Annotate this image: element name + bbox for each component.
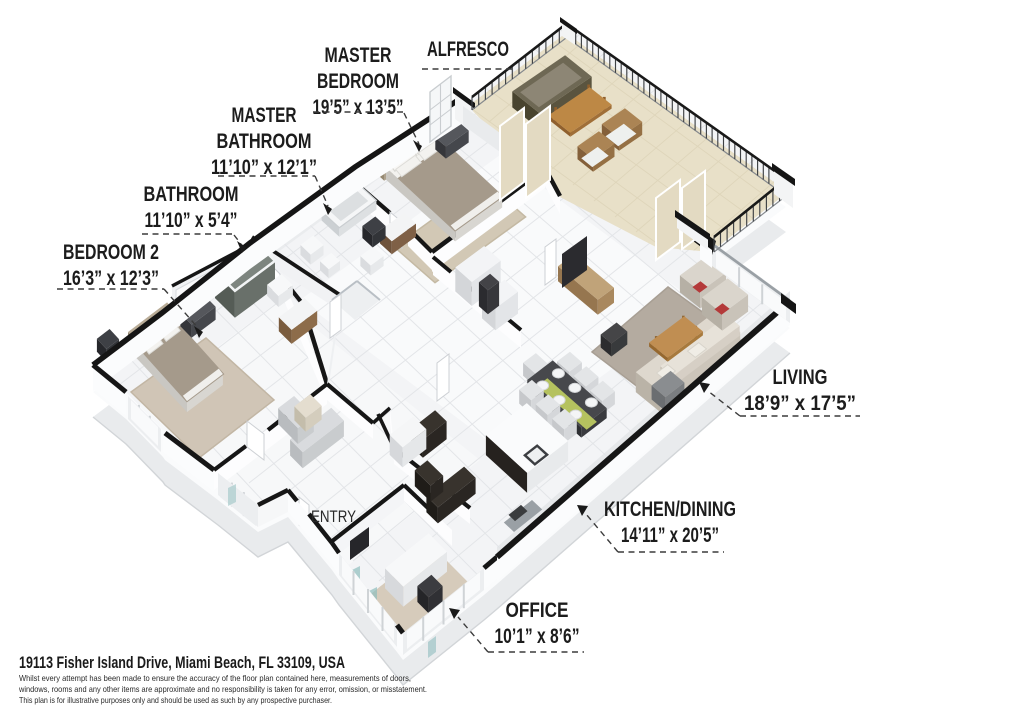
svg-text:This plan is for illustrative: This plan is for illustrative purposes o… xyxy=(19,695,332,705)
svg-text:19113 Fisher Island Drive, Mia: 19113 Fisher Island Drive, Miami Beach, … xyxy=(19,654,345,672)
svg-text:LIVING: LIVING xyxy=(773,366,828,389)
svg-text:BATHROOM: BATHROOM xyxy=(144,183,239,206)
svg-text:Whilst every attempt has been: Whilst every attempt has been made to en… xyxy=(19,673,411,683)
svg-text:18’9” x 17’5”: 18’9” x 17’5” xyxy=(744,392,856,415)
svg-text:19’5” x 13’5”: 19’5” x 13’5” xyxy=(313,96,404,119)
svg-text:KITCHEN/DINING: KITCHEN/DINING xyxy=(604,498,736,521)
svg-text:16’3” x 12’3”: 16’3” x 12’3” xyxy=(63,267,159,290)
svg-text:10’1” x 8’6”: 10’1” x 8’6” xyxy=(495,625,580,648)
svg-text:OFFICE: OFFICE xyxy=(506,599,569,622)
svg-text:11’10” x 5’4”: 11’10” x 5’4” xyxy=(145,209,238,232)
svg-text:BEDROOM: BEDROOM xyxy=(317,70,399,93)
svg-text:14’11” x 20’5”: 14’11” x 20’5” xyxy=(621,524,719,547)
svg-text:ALFRESCO: ALFRESCO xyxy=(427,38,509,61)
svg-text:MASTER: MASTER xyxy=(325,44,392,67)
svg-text:ENTRY: ENTRY xyxy=(311,507,356,526)
svg-text:MASTER: MASTER xyxy=(232,104,297,127)
svg-text:windows, rooms and any other i: windows, rooms and any other items are a… xyxy=(18,684,427,694)
svg-text:BATHROOM: BATHROOM xyxy=(217,130,312,153)
svg-text:BEDROOM 2: BEDROOM 2 xyxy=(63,241,159,264)
